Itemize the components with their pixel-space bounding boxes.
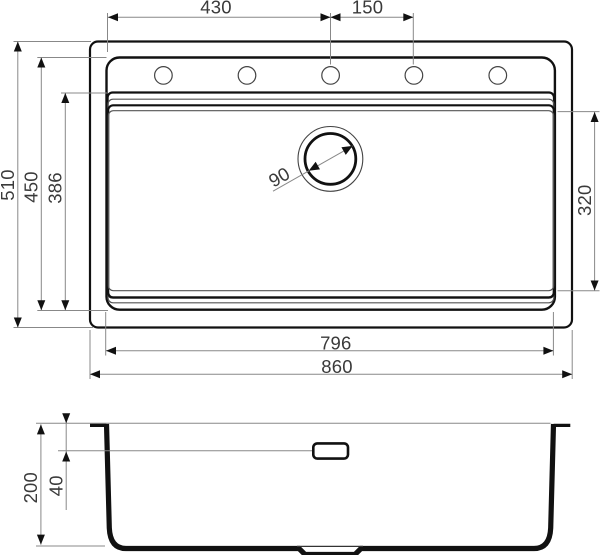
svg-text:320: 320 (574, 185, 595, 216)
svg-text:90: 90 (265, 163, 294, 192)
svg-text:450: 450 (21, 171, 42, 202)
svg-text:386: 386 (45, 172, 66, 203)
svg-text:200: 200 (20, 472, 41, 503)
svg-text:860: 860 (321, 356, 352, 377)
svg-text:430: 430 (200, 0, 231, 18)
svg-text:150: 150 (352, 0, 383, 18)
svg-text:510: 510 (0, 169, 18, 200)
svg-text:40: 40 (46, 475, 67, 496)
svg-text:796: 796 (320, 333, 351, 354)
